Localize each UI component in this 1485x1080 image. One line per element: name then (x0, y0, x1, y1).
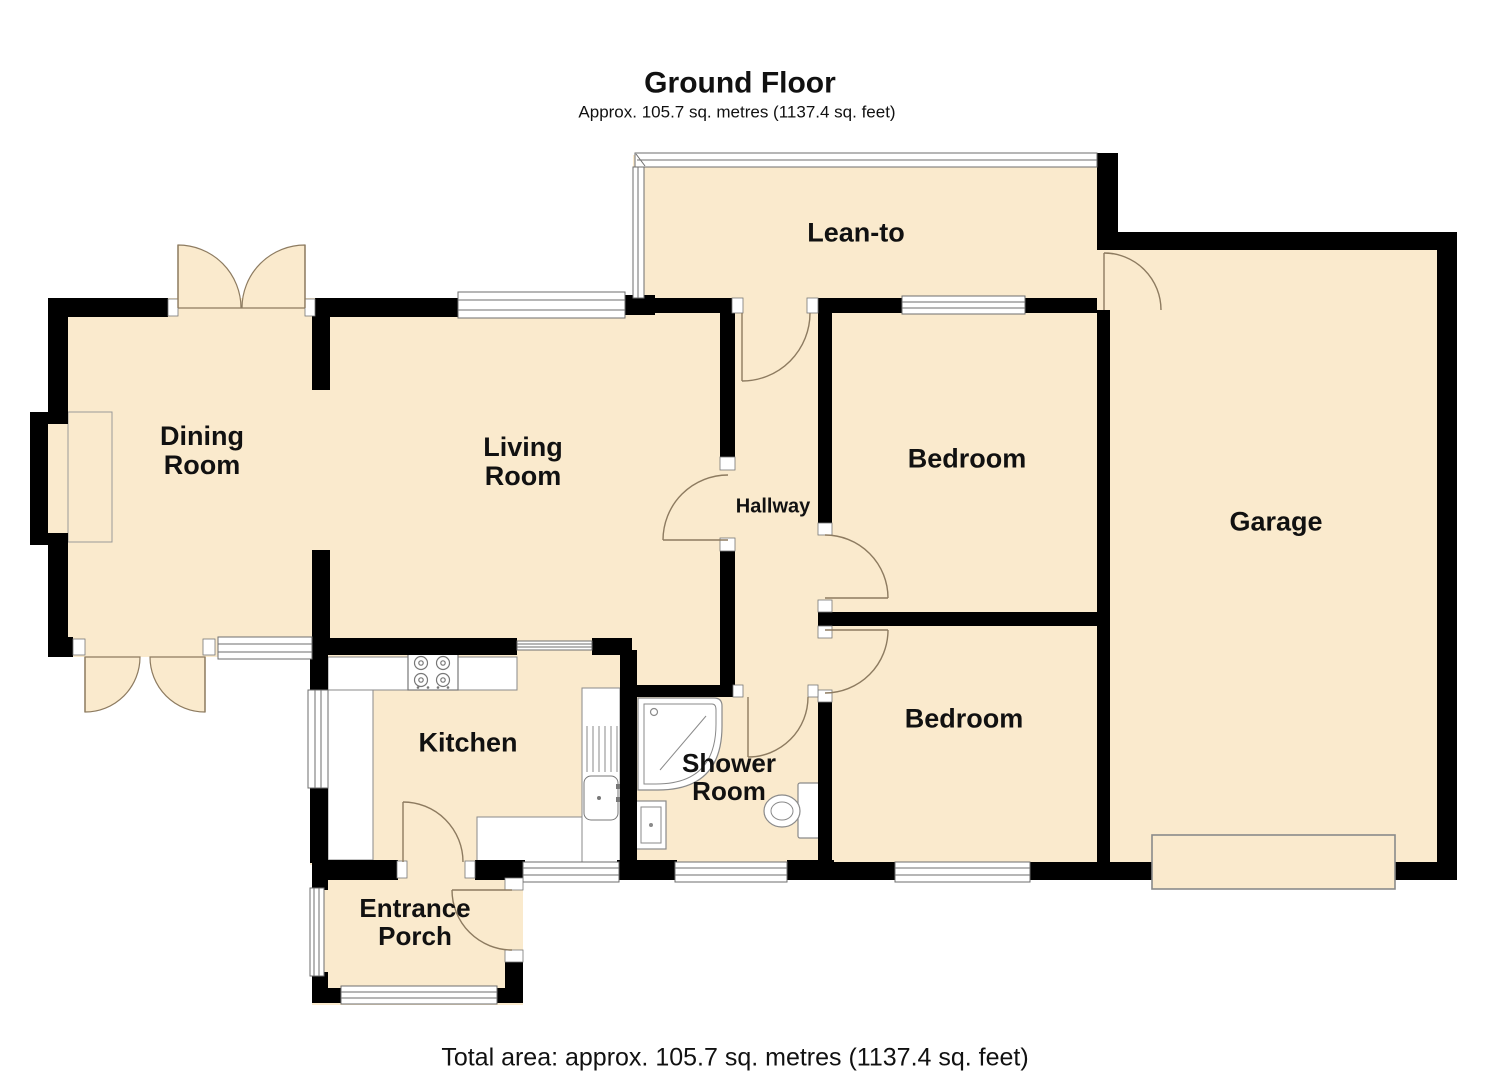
page-subtitle: Approx. 105.7 sq. metres (1137.4 sq. fee… (578, 98, 895, 127)
door-jamb (720, 457, 735, 470)
wall-segment (818, 702, 832, 862)
door-jamb (732, 298, 743, 313)
wall-segment (310, 638, 517, 655)
serving-hatch (517, 641, 592, 650)
room-label-line: Porch (359, 922, 470, 950)
wall-segment (310, 788, 328, 863)
wall-segment (720, 551, 735, 697)
wall-segment (310, 655, 328, 690)
page-title: Ground Floor (644, 69, 836, 98)
wall-segment (312, 858, 328, 890)
wall-segment (312, 313, 330, 390)
wall-segment (48, 637, 73, 657)
window-kitchen-bottom (523, 862, 619, 882)
window-bedroom1-top (902, 296, 1025, 314)
floor-garage (1097, 240, 1442, 867)
door-jamb (73, 639, 85, 655)
floor-dining-living (48, 298, 737, 657)
window-shower-bottom (675, 862, 787, 882)
room-label-line: Room (682, 777, 776, 805)
room-label-living: Living Room (483, 433, 563, 491)
door-jamb (305, 299, 315, 316)
wall-segment (1097, 310, 1110, 862)
wall-segment (30, 412, 68, 424)
hob (408, 650, 458, 690)
counter-bottom (477, 817, 582, 862)
wall-segment (818, 612, 1097, 626)
wall-segment (1110, 232, 1457, 250)
wall-segment (632, 685, 733, 697)
wall-segment (1437, 232, 1457, 880)
door-jamb (505, 878, 523, 890)
floorplan-svg (0, 0, 1485, 1080)
room-label-line: Entrance (359, 894, 470, 922)
room-label-line: Room (483, 462, 563, 491)
window-kitchen-left (308, 690, 328, 788)
window-porch-bottom (341, 986, 497, 1004)
door-jamb (807, 298, 818, 313)
door-jamb (168, 299, 178, 316)
room-label-dining: Dining Room (160, 422, 244, 480)
french-door-petal (242, 245, 305, 308)
room-label-kitchen: Kitchen (418, 729, 517, 758)
wall-segment (1025, 298, 1097, 313)
room-label-line: Room (160, 451, 244, 480)
wall-segment (475, 860, 525, 880)
wall-segment (505, 962, 523, 1003)
counter-left (328, 690, 373, 860)
wall-segment (655, 298, 732, 313)
wall-segment (48, 298, 68, 412)
wall-segment (312, 988, 343, 1003)
leanto-glazing-top (635, 153, 1097, 167)
french-door-petal (85, 657, 140, 712)
counter-right (582, 688, 620, 862)
wall-segment (30, 533, 68, 545)
wall-segment (832, 862, 897, 880)
door-jamb (818, 600, 832, 612)
door-jamb (808, 685, 818, 697)
garage-door (1152, 835, 1395, 889)
door-jamb (505, 950, 523, 962)
door-jamb (397, 861, 407, 878)
wall-segment (818, 313, 832, 523)
wall-segment (318, 860, 398, 880)
door-jamb (818, 523, 832, 535)
window-bedroom2-bottom (895, 862, 1030, 882)
fireplace (68, 412, 112, 542)
room-label-shower: Shower Room (682, 749, 776, 805)
wall-segment (787, 860, 834, 880)
window-living-top (458, 292, 625, 318)
french-door-petal (178, 245, 241, 308)
room-label-line: Shower (682, 749, 776, 777)
door-jamb (203, 639, 215, 655)
window-porch-left (310, 888, 324, 976)
room-label-line: Living (483, 433, 563, 462)
room-label-leanto: Lean-to (807, 219, 905, 248)
door-jamb (818, 690, 832, 702)
leanto-glazing-left (633, 167, 644, 298)
wall-segment (30, 412, 48, 545)
window-dining-bottom (218, 637, 312, 659)
door-jamb (465, 861, 475, 878)
door-jamb (818, 626, 832, 638)
wall-segment (312, 550, 330, 640)
wall-segment (1097, 153, 1118, 250)
room-label-bedroom2: Bedroom (905, 705, 1024, 734)
wall-segment (617, 860, 677, 880)
wall-segment (720, 313, 735, 457)
room-label-hallway: Hallway (736, 493, 810, 522)
room-label-garage: Garage (1229, 508, 1322, 537)
door-jamb (733, 685, 743, 697)
total-area-text: Total area: approx. 105.7 sq. metres (11… (441, 1044, 1028, 1073)
wall-segment (620, 650, 637, 865)
floorplan-page: Ground Floor Approx. 105.7 sq. metres (1… (0, 0, 1485, 1080)
wall-segment (1028, 862, 1097, 880)
floor-bedrooms (818, 298, 1097, 868)
wall-segment (818, 298, 902, 313)
french-door-petal (150, 657, 205, 712)
room-label-line: Dining (160, 422, 244, 451)
room-label-porch: Entrance Porch (359, 894, 470, 950)
room-label-bedroom1: Bedroom (908, 445, 1027, 474)
wall-segment (315, 298, 458, 317)
